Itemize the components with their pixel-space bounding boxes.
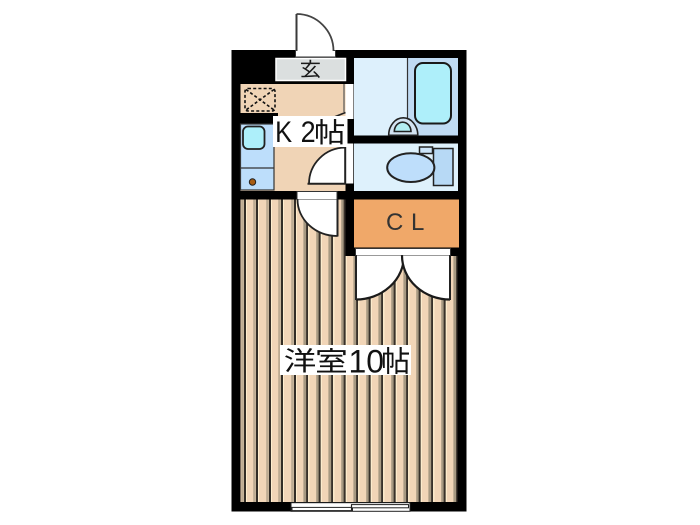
- svg-text:CL: CL: [386, 209, 432, 236]
- svg-text:K: K: [275, 115, 292, 148]
- svg-text:2: 2: [301, 116, 316, 150]
- svg-text:10: 10: [349, 343, 385, 379]
